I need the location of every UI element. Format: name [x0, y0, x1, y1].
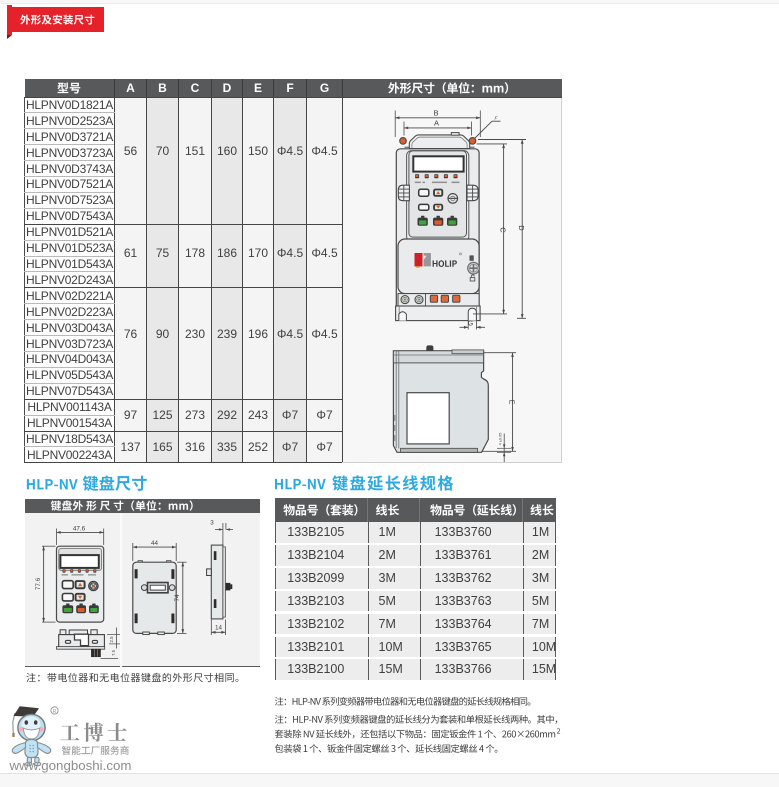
svg-text:7.5: 7.5 [111, 649, 116, 655]
svg-text:C: C [498, 227, 507, 233]
svg-text:A: A [434, 119, 439, 128]
svg-text:74: 74 [174, 594, 181, 602]
svg-text:14: 14 [215, 624, 223, 631]
svg-text:4 ±0.05: 4 ±0.05 [499, 433, 503, 446]
svg-text:2.5: 2.5 [109, 635, 114, 642]
svg-text:D: D [517, 225, 526, 231]
svg-text:44: 44 [151, 539, 159, 546]
svg-text:B: B [433, 108, 438, 117]
svg-text:77.6: 77.6 [35, 577, 42, 590]
svg-text:R: R [53, 709, 57, 715]
svg-text:F: F [495, 116, 499, 122]
svg-text:47.6: 47.6 [73, 525, 86, 532]
svg-text:E: E [507, 400, 514, 405]
svg-text:3: 3 [210, 519, 214, 526]
svg-text:G: G [468, 320, 473, 327]
